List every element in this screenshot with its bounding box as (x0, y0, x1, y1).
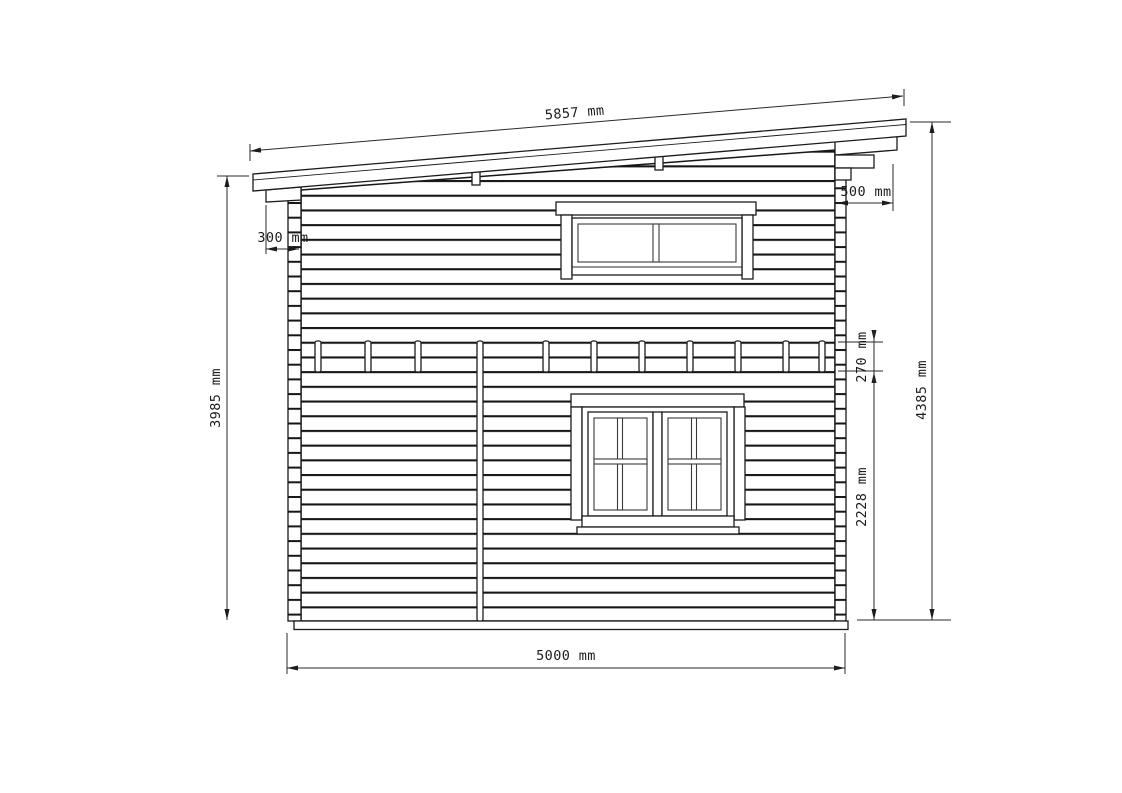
dim-label-width: 5000 mm (536, 648, 596, 664)
base-plate (294, 621, 848, 630)
lower-window-header (571, 394, 744, 407)
dim-label-overhang-right: 500 mm (840, 184, 891, 200)
elevation-page: 5857 mm 500 mm 300 mm 3985 mm 4385 mm (0, 0, 1122, 793)
dim-height-left: 3985 mm (208, 176, 249, 620)
upper-window-mullion (653, 224, 659, 262)
corner-column-right (835, 150, 846, 621)
dim-label-height-left: 3985 mm (208, 368, 224, 428)
lower-window-sash-left (588, 412, 653, 516)
upper-window-header (556, 202, 756, 215)
lower-window-center-post (653, 412, 662, 516)
corner-column-left (288, 188, 301, 621)
dim-width: 5000 mm (287, 633, 845, 674)
purlin-end-right-3 (835, 168, 851, 180)
lower-window-trim-left (571, 407, 582, 520)
elevation-drawing: 5857 mm 500 mm 300 mm 3985 mm 4385 mm (0, 0, 1122, 793)
dim-label-lower-section: 2228 mm (854, 467, 870, 527)
dim-label-height-right: 4385 mm (914, 360, 930, 420)
muntin-horizontal (668, 459, 721, 464)
lower-window-sill-base (577, 527, 739, 534)
upper-window (556, 202, 756, 279)
dim-label-overhang-left: 300 mm (257, 230, 308, 246)
lower-window-sash-right (662, 412, 727, 516)
purlin-end-right-2 (835, 155, 874, 168)
upper-window-jamb-left (561, 215, 572, 279)
dim-label-top-band: 270 mm (854, 331, 870, 382)
lower-window (571, 394, 745, 534)
storm-batten (477, 341, 483, 621)
muntin-horizontal (594, 459, 647, 464)
lower-window-sill (582, 516, 734, 527)
upper-window-jamb-right (742, 215, 753, 279)
lower-window-trim-right (734, 407, 745, 520)
dim-label-roof-length: 5857 mm (544, 103, 605, 124)
